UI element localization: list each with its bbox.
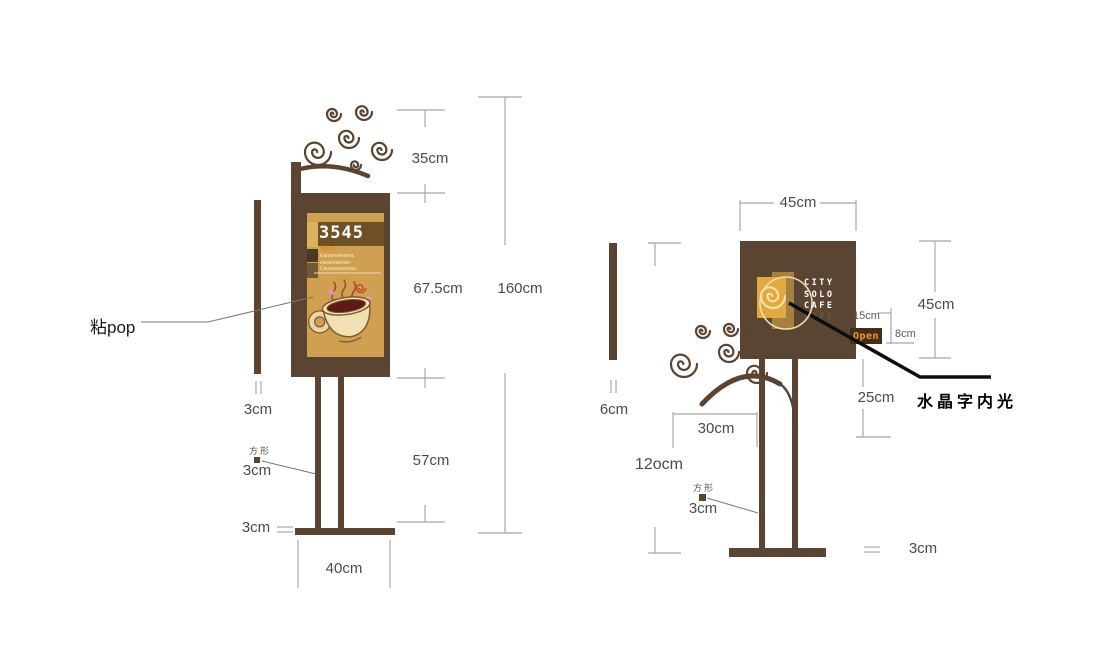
logo-spiral-icon [761, 287, 785, 308]
dimension-pole-height-left: 57cm [413, 452, 450, 469]
logo-spiral-mark [760, 277, 812, 329]
swirl-icon [372, 143, 392, 160]
dimension-board-width-right: 45cm [780, 194, 817, 211]
pop-annotation: 粘pop [90, 313, 135, 338]
dimension-total-height: 160cm [497, 280, 542, 297]
swirl-icon [671, 355, 697, 377]
pop-leader-line [141, 297, 313, 322]
dimension-board-height: 67.5cm [413, 280, 462, 297]
swirl-icon [327, 109, 341, 121]
steam-swirl-icon [357, 285, 366, 293]
swirl-icon [696, 326, 710, 338]
sign-dimension-diagram: 3545 Open Earaenaeraera, earaenaeraer. C… [0, 0, 1101, 667]
dimension-pole-square-right: 3cm [689, 500, 717, 517]
crystal-letter-annotation: 水晶字内光 [917, 388, 1017, 412]
dimension-base-thickness-left: 3cm [242, 519, 270, 536]
dimension-open-offset: 15cm [853, 310, 880, 322]
cup-base-line [339, 337, 361, 343]
dimension-swirl-offset: 30cm [698, 420, 735, 437]
swirl-icon [724, 324, 738, 336]
dimension-board-height-right: 45cm [918, 296, 955, 313]
shape-label-left: 方形 [249, 444, 271, 457]
coffee-cup-illustration [306, 273, 381, 347]
swirl-icon [339, 131, 359, 148]
dimension-below-board: 25cm [858, 389, 895, 406]
left-swirl-decoration [300, 106, 392, 176]
dimension-top-decoration: 35cm [412, 150, 449, 167]
logo-circle [760, 277, 812, 329]
dimension-side-strip-left: 3cm [244, 401, 272, 418]
diagram-linework [0, 0, 1101, 667]
swirl-icon [356, 106, 372, 120]
shape-label-right: 方形 [693, 481, 715, 494]
dimension-base-width: 40cm [326, 560, 363, 577]
swirl-icon [719, 345, 739, 362]
dimension-open-height: 8cm [895, 328, 916, 340]
leader-lines [141, 297, 758, 513]
swirl-icon [746, 323, 756, 332]
dimension-side-strip-right: 6cm [600, 401, 628, 418]
swirl-icon [305, 143, 331, 165]
branch-arc-tail [780, 384, 796, 430]
cup-group [306, 294, 375, 347]
dimension-pole-height-right: 12ocm [635, 456, 683, 474]
branch-arc [702, 376, 780, 404]
dimension-pole-square-left: 3cm [243, 462, 271, 479]
crystal-leader-line [789, 303, 991, 377]
dimension-base-thickness-right: 3cm [909, 540, 937, 557]
